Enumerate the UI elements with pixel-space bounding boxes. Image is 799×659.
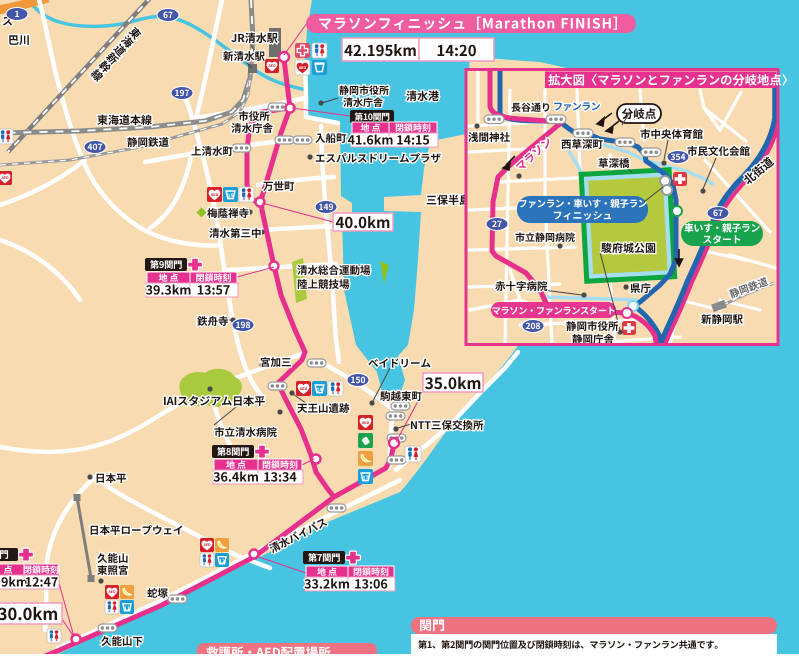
svg-text:67: 67 [163, 9, 173, 21]
svg-text:清水総合運動場: 清水総合運動場 [297, 263, 371, 278]
svg-text:浅間神社: 浅間神社 [468, 130, 510, 145]
svg-text:13:06: 13:06 [354, 574, 388, 593]
svg-text:草深橋: 草深橋 [598, 156, 630, 171]
svg-text:久能山下: 久能山下 [101, 634, 143, 649]
svg-text:万世町: 万世町 [263, 179, 295, 194]
svg-text:上清水町: 上清水町 [191, 144, 233, 159]
svg-text:新清水駅: 新清水駅 [223, 49, 265, 64]
svg-text:12: 12 [219, 558, 225, 565]
svg-text:JR清水駅: JR清水駅 [231, 30, 278, 46]
svg-text:マラソン・ファンランスタート: マラソン・ファンランスタート [492, 303, 616, 317]
svg-text:清水第三中: 清水第三中 [209, 226, 262, 241]
svg-text:清水港: 清水港 [406, 88, 439, 104]
svg-text:AED: AED [210, 193, 219, 198]
svg-text:第8関門: 第8関門 [217, 444, 249, 458]
svg-text:市中央体育館: 市中央体育館 [640, 127, 703, 142]
svg-text:AED: AED [1, 176, 9, 181]
svg-text:東海道本線: 東海道本線 [97, 112, 152, 128]
svg-text:赤十字病院: 赤十字病院 [495, 279, 548, 294]
svg-text:14:20: 14:20 [436, 40, 476, 61]
svg-text:AED: AED [361, 421, 370, 426]
svg-text:33.2km: 33.2km [304, 574, 350, 593]
svg-text:日本平: 日本平 [95, 471, 127, 486]
svg-text:清水庁舎: 清水庁舎 [343, 94, 383, 109]
svg-text:駒越東町: 駒越東町 [380, 389, 422, 404]
svg-text:関門: 関門 [419, 615, 445, 634]
svg-text:197: 197 [174, 87, 189, 99]
svg-text:14:15: 14:15 [396, 130, 430, 149]
svg-text:13:57: 13:57 [197, 280, 231, 299]
svg-text:407: 407 [87, 141, 102, 153]
svg-text:市立静岡病院: 市立静岡病院 [515, 229, 575, 244]
svg-text:AED: AED [268, 64, 276, 69]
svg-text:梅蔭禅寺: 梅蔭禅寺 [207, 206, 249, 221]
svg-text:1: 1 [14, 8, 19, 20]
svg-text:拡大図〈マラソンとファンランの分岐地点〉: 拡大図〈マラソンとファンランの分岐地点〉 [548, 71, 794, 89]
svg-text:天王山遺跡: 天王山遺跡 [297, 401, 350, 416]
svg-text:マラソンフィニッシュ［Marathon FINISH］: マラソンフィニッシュ［Marathon FINISH］ [318, 14, 628, 34]
svg-text:39.3km: 39.3km [146, 280, 192, 299]
svg-text:門: 門 [0, 547, 9, 561]
svg-text:35.0km: 35.0km [425, 372, 482, 394]
svg-text:エスパルスドリームプラザ: エスパルスドリームプラザ [315, 151, 441, 166]
svg-text:新静岡駅: 新静岡駅 [701, 312, 743, 327]
svg-text:鉄舟寺: 鉄舟寺 [197, 314, 229, 329]
svg-text:12:47: 12:47 [25, 572, 59, 591]
svg-text:長谷通り: 長谷通り [511, 99, 551, 114]
svg-text:149: 149 [318, 201, 333, 213]
svg-text:11: 11 [124, 605, 130, 612]
svg-text:市民文化会館: 市民文化会館 [687, 144, 750, 159]
svg-text:36.4km: 36.4km [213, 467, 259, 486]
svg-text:AED: AED [108, 590, 116, 595]
svg-text:三保半島: 三保半島 [426, 192, 470, 208]
svg-text:14: 14 [316, 387, 322, 394]
svg-text:AED: AED [299, 387, 308, 392]
svg-text:分岐点: 分岐点 [622, 106, 657, 122]
svg-text:40.0km: 40.0km [336, 212, 391, 233]
svg-text:AED: AED [203, 543, 211, 548]
svg-text:354: 354 [670, 151, 685, 163]
svg-text:巴川: 巴川 [8, 32, 30, 48]
svg-text:27: 27 [492, 218, 502, 230]
svg-text:西草深町: 西草深町 [561, 137, 603, 152]
svg-text:NTT三保交換所: NTT三保交換所 [410, 418, 484, 433]
svg-text:市立清水病院: 市立清水病院 [214, 425, 277, 440]
svg-text:救護所・AED配置場所: 救護所・AED配置場所 [206, 642, 331, 654]
svg-text:30.0km: 30.0km [0, 601, 58, 625]
svg-text:ファンラン: ファンラン [553, 98, 601, 113]
svg-text:フィニッシュ: フィニッシュ [553, 207, 613, 222]
svg-text:スタート: スタート [702, 232, 741, 246]
svg-text:第7関門: 第7関門 [308, 550, 340, 564]
svg-text:AED: AED [298, 66, 307, 71]
svg-text:ベイドリーム: ベイドリーム [368, 356, 431, 371]
svg-text:第1、第2関門の関門位置及び閉鎖時刻は、マラソン・ファンラン: 第1、第2関門の関門位置及び閉鎖時刻は、マラソン・ファンラン共通です。 [418, 637, 723, 651]
svg-text:清水庁舎: 清水庁舎 [231, 121, 273, 136]
svg-text:15: 15 [227, 193, 233, 200]
svg-text:150: 150 [350, 374, 365, 386]
svg-text:宮加三: 宮加三 [260, 355, 292, 370]
svg-text:17: 17 [362, 475, 368, 482]
svg-text:県庁: 県庁 [630, 281, 651, 296]
svg-text:13:34: 13:34 [263, 467, 297, 486]
svg-text:東照宮: 東照宮 [97, 563, 129, 578]
svg-text:入船町: 入船町 [315, 131, 347, 146]
svg-text:IAIスタジアム日本平: IAIスタジアム日本平 [163, 393, 265, 409]
svg-text:静岡鉄道: 静岡鉄道 [127, 135, 169, 150]
svg-text:駿府城公園: 駿府城公園 [601, 240, 656, 256]
svg-text:41.6km: 41.6km [348, 130, 394, 149]
svg-text:蛇塚: 蛇塚 [147, 586, 168, 601]
svg-text:第9関門: 第9関門 [150, 257, 182, 271]
svg-text:198: 198 [235, 319, 250, 331]
svg-text:陸上競技場: 陸上競技場 [297, 277, 350, 292]
svg-text:42.195km: 42.195km [344, 40, 417, 61]
svg-text:67: 67 [713, 207, 723, 219]
svg-text:208: 208 [525, 320, 540, 332]
svg-text:日本平ロープウェイ: 日本平ロープウェイ [89, 523, 184, 538]
